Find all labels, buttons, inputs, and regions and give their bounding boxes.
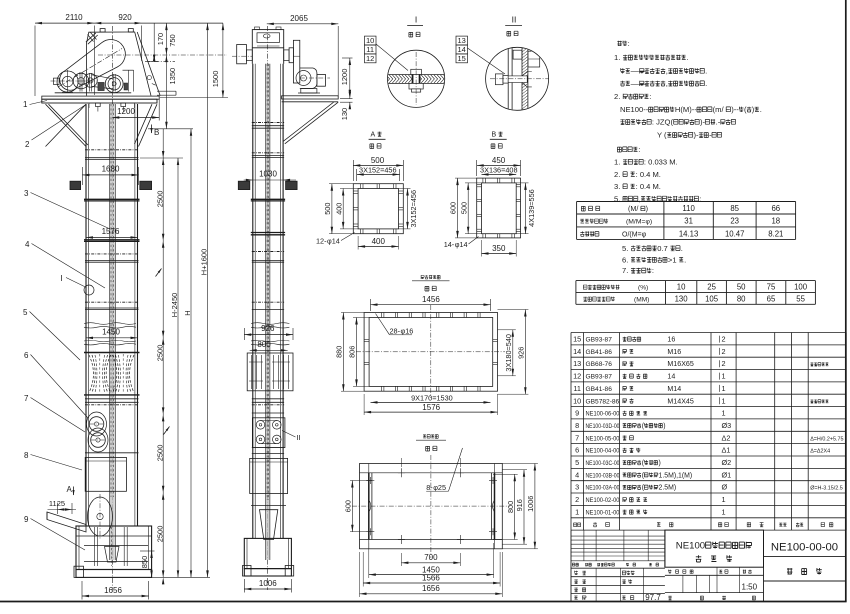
svg-text:11: 11 (366, 45, 374, 54)
svg-text:10: 10 (366, 36, 374, 45)
svg-text:110: 110 (682, 204, 695, 213)
svg-text:1: 1 (23, 100, 28, 109)
svg-text:NE100-01-00: NE100-01-00 (586, 510, 620, 517)
svg-text:NE100-02-00: NE100-02-00 (586, 497, 620, 504)
svg-text::: : (652, 266, 654, 275)
svg-text:11: 11 (573, 384, 581, 393)
svg-text:II: II (297, 433, 301, 442)
svg-text:φ16: φ16 (401, 327, 414, 336)
svg-text:A: A (67, 485, 73, 494)
svg-text:Ø1: Ø1 (722, 470, 732, 479)
svg-text::: : (638, 145, 640, 154)
svg-text:2110: 2110 (65, 13, 83, 22)
svg-text:0.7: 0.7 (657, 244, 668, 253)
svg-text:1350: 1350 (168, 68, 177, 85)
svg-text:600: 600 (449, 202, 458, 214)
svg-text:806: 806 (348, 346, 357, 358)
svg-text:2: 2 (722, 359, 726, 368)
svg-text:170: 170 (156, 33, 165, 46)
svg-text:10: 10 (677, 282, 686, 291)
svg-text:1680: 1680 (102, 165, 120, 174)
svg-text:1656: 1656 (422, 584, 440, 593)
svg-text:65: 65 (767, 294, 776, 303)
svg-text:12: 12 (573, 372, 581, 381)
svg-text:850: 850 (140, 556, 149, 569)
svg-text:Ø3: Ø3 (722, 421, 732, 430)
svg-text:14: 14 (573, 347, 581, 356)
svg-text:7: 7 (575, 433, 579, 442)
svg-text:NE100-06-00: NE100-06-00 (586, 411, 620, 418)
svg-text:8-: 8- (426, 483, 433, 492)
svg-text:23: 23 (730, 217, 739, 226)
svg-text::: : (649, 92, 651, 101)
svg-text:.-: .- (716, 118, 721, 127)
svg-text:φ25: φ25 (433, 483, 446, 492)
svg-text:Y (: Y ( (657, 131, 667, 140)
svg-text:NE100-03C-00: NE100-03C-00 (586, 460, 620, 467)
svg-text:700: 700 (424, 553, 438, 562)
svg-text:13: 13 (573, 359, 581, 368)
svg-text:GB93-87: GB93-87 (586, 337, 613, 344)
svg-text:97.7: 97.7 (645, 593, 661, 602)
svg-text:80: 80 (737, 294, 746, 303)
svg-text:Ø=H-3.15/2.5: Ø=H-3.15/2.5 (810, 486, 843, 492)
svg-text:800: 800 (257, 340, 271, 349)
svg-text:A: A (371, 132, 376, 139)
svg-text:2500: 2500 (155, 345, 164, 362)
svg-text:: 0.033 M.: : 0.033 M. (644, 158, 678, 167)
svg-text:3: 3 (575, 483, 579, 492)
svg-text:3.: 3. (614, 182, 620, 191)
svg-text:3X180=540: 3X180=540 (504, 334, 513, 372)
svg-text:4: 4 (25, 240, 30, 249)
svg-text:(%): (%) (638, 284, 648, 291)
svg-text:>1: >1 (668, 255, 677, 264)
svg-text:)-: )- (694, 131, 700, 140)
svg-text:916: 916 (515, 499, 524, 511)
svg-text:3: 3 (24, 189, 29, 198)
svg-text:(M/M=φ): (M/M=φ) (626, 219, 652, 226)
svg-text:φ14: φ14 (327, 237, 340, 246)
svg-text:Δ=Δ2X4: Δ=Δ2X4 (810, 449, 830, 455)
svg-text:)-: )- (700, 118, 706, 127)
svg-text:2.5M): 2.5M) (659, 485, 677, 492)
svg-text:B: B (154, 128, 159, 137)
svg-text:NE100-04-00: NE100-04-00 (586, 448, 620, 455)
svg-text:5: 5 (23, 308, 28, 317)
svg-text:GB41-86: GB41-86 (586, 386, 613, 393)
svg-text:1566: 1566 (422, 574, 440, 583)
svg-text:1656: 1656 (104, 586, 122, 595)
svg-text:2: 2 (722, 335, 726, 344)
svg-text:GB5782-86: GB5782-86 (586, 398, 620, 405)
svg-text:.: . (760, 105, 762, 114)
svg-text:400: 400 (334, 203, 343, 215)
svg-text:15: 15 (573, 335, 581, 344)
svg-text:NE100-05-00: NE100-05-00 (586, 435, 620, 442)
svg-text:)--: )-- (731, 105, 739, 114)
svg-text:φ14: φ14 (455, 240, 468, 249)
svg-text:B: B (492, 132, 497, 139)
svg-text:1.: 1. (614, 53, 620, 62)
svg-text:2500: 2500 (155, 191, 164, 208)
svg-text:450: 450 (492, 156, 506, 165)
svg-text:NE100--: NE100-- (620, 105, 649, 114)
svg-text:1200: 1200 (340, 69, 349, 86)
svg-text:800: 800 (506, 501, 515, 513)
svg-text:NE100-00-00: NE100-00-00 (771, 541, 838, 553)
svg-text:16: 16 (667, 336, 675, 344)
svg-text:4: 4 (575, 470, 579, 479)
svg-text:,: , (666, 79, 668, 88)
svg-text:,: , (666, 67, 668, 76)
svg-text:NE100-03B-00: NE100-03B-00 (586, 472, 620, 479)
svg-text:.: . (705, 67, 707, 76)
svg-text:Δ=H/0.2+5.75: Δ=H/0.2+5.75 (810, 436, 843, 442)
svg-text:8: 8 (575, 421, 579, 430)
svg-text:1: 1 (722, 372, 726, 381)
svg-text:(MM): (MM) (634, 296, 649, 303)
svg-text:9X170=1530: 9X170=1530 (411, 393, 453, 402)
svg-text:3X136=408: 3X136=408 (480, 165, 518, 174)
svg-text::: : (628, 39, 630, 48)
svg-text:1: 1 (575, 508, 579, 517)
svg-text:Ø: Ø (722, 483, 728, 492)
svg-text:5: 5 (575, 458, 579, 467)
svg-text:M16: M16 (667, 348, 681, 356)
svg-text:130: 130 (340, 108, 349, 121)
svg-text:9: 9 (24, 515, 29, 524)
svg-text:H+1600: H+1600 (199, 249, 208, 275)
svg-text:M14X45: M14X45 (667, 397, 693, 405)
svg-text:600: 600 (344, 500, 353, 512)
svg-text:1:50: 1:50 (742, 582, 758, 591)
svg-text:1125: 1125 (49, 499, 65, 508)
svg-text:1: 1 (722, 508, 726, 517)
svg-text:1: 1 (722, 409, 726, 418)
svg-text:II: II (512, 15, 517, 25)
svg-text:85: 85 (730, 204, 739, 213)
svg-text:Ø2: Ø2 (722, 458, 732, 467)
svg-text:1006: 1006 (259, 579, 277, 588)
svg-text:(M/: (M/ (628, 204, 638, 213)
svg-text:1200: 1200 (117, 107, 135, 116)
svg-text:12-: 12- (316, 237, 327, 246)
svg-text:14: 14 (667, 373, 675, 381)
svg-text:H-2450: H-2450 (170, 293, 179, 318)
svg-text:NE100-03A-00: NE100-03A-00 (586, 485, 620, 492)
svg-text:10: 10 (573, 396, 581, 405)
svg-text:9: 9 (575, 409, 579, 418)
svg-text:NE100: NE100 (676, 541, 705, 552)
svg-text:3X152=456: 3X152=456 (409, 190, 418, 228)
svg-text:14.13: 14.13 (679, 229, 699, 238)
svg-text:1030: 1030 (259, 170, 277, 179)
svg-text:): ) (646, 204, 648, 213)
svg-text:1500: 1500 (211, 71, 220, 88)
svg-text:Δ1: Δ1 (722, 446, 731, 455)
svg-text:2.: 2. (614, 92, 620, 101)
svg-text:105: 105 (705, 294, 719, 303)
svg-text:.: . (705, 79, 707, 88)
svg-text:6: 6 (575, 446, 579, 455)
svg-text:1576: 1576 (102, 227, 120, 236)
svg-text:O/(M=φ: O/(M=φ (622, 231, 647, 238)
svg-text:GB93-87: GB93-87 (586, 374, 613, 381)
svg-text:Δ2: Δ2 (722, 433, 731, 442)
svg-text:350: 350 (492, 244, 506, 253)
svg-text:8.21: 8.21 (768, 229, 783, 238)
svg-text:2: 2 (25, 140, 30, 149)
svg-text:31: 31 (684, 217, 693, 226)
svg-text:5.: 5. (622, 244, 628, 253)
svg-text:1576: 1576 (422, 403, 440, 412)
svg-text:500: 500 (323, 203, 332, 215)
svg-text:500: 500 (371, 156, 385, 165)
svg-text:14-: 14- (444, 240, 455, 249)
svg-text:6.: 6. (622, 255, 628, 264)
svg-text:400: 400 (372, 237, 386, 246)
svg-text:13: 13 (458, 36, 466, 45)
svg-text:GB68-76: GB68-76 (586, 361, 613, 368)
svg-text:.: . (684, 255, 686, 264)
svg-text:130: 130 (675, 294, 689, 303)
svg-text:7.: 7. (622, 266, 628, 275)
svg-text:500: 500 (459, 202, 468, 214)
svg-text:2.: 2. (614, 170, 620, 179)
svg-text:: 0.4 M.: : 0.4 M. (636, 182, 661, 191)
svg-text:2: 2 (722, 347, 726, 356)
svg-text:926: 926 (261, 324, 275, 333)
svg-text:28-: 28- (390, 327, 401, 336)
svg-text:7: 7 (24, 394, 29, 403)
svg-text:1: 1 (722, 384, 726, 393)
svg-text:50: 50 (737, 282, 746, 291)
svg-text:H: H (183, 310, 192, 315)
svg-text:880: 880 (335, 346, 344, 358)
svg-text:GB41-86: GB41-86 (586, 349, 613, 356)
svg-text:55: 55 (796, 294, 805, 303)
svg-text:2500: 2500 (155, 445, 164, 462)
svg-text:25: 25 (707, 282, 716, 291)
svg-text:1.5M),1(M): 1.5M),1(M) (659, 472, 693, 479)
svg-text:10.47: 10.47 (725, 229, 745, 238)
svg-text:4X139=556: 4X139=556 (527, 189, 536, 227)
svg-text:750: 750 (168, 34, 177, 47)
svg-text:100: 100 (794, 282, 808, 291)
svg-text:1456: 1456 (422, 295, 440, 304)
svg-text:1450: 1450 (102, 327, 120, 336)
svg-text:M14: M14 (667, 385, 681, 393)
svg-text:66: 66 (771, 204, 780, 213)
svg-text:1.: 1. (614, 158, 620, 167)
svg-text:): ) (659, 460, 661, 467)
svg-text:.: . (681, 244, 683, 253)
svg-text:6: 6 (24, 351, 29, 360)
svg-text:I: I (415, 15, 417, 25)
svg-text:15: 15 (458, 54, 466, 63)
svg-text:2065: 2065 (290, 14, 308, 23)
svg-text:1: 1 (722, 396, 726, 405)
svg-text:: JZQ(: : JZQ( (652, 118, 674, 127)
svg-text:: 0.4 M.: : 0.4 M. (636, 170, 661, 179)
svg-text:926: 926 (517, 347, 526, 359)
svg-text:3X152=456: 3X152=456 (359, 165, 397, 174)
svg-text:12: 12 (366, 54, 374, 63)
svg-text:): ) (663, 423, 665, 430)
svg-text:M16X65: M16X65 (667, 360, 693, 368)
svg-text:.: . (687, 53, 689, 62)
svg-text:1006: 1006 (526, 496, 535, 512)
svg-text:2500: 2500 (155, 526, 164, 543)
svg-text:75: 75 (767, 282, 776, 291)
svg-text:(m/: (m/ (713, 105, 725, 114)
svg-text:H(M)--: H(M)-- (675, 105, 697, 114)
svg-text:14: 14 (458, 45, 466, 54)
svg-text:1: 1 (722, 495, 726, 504)
svg-text:I: I (61, 274, 63, 283)
svg-text:18: 18 (771, 217, 780, 226)
svg-text:NE100-03D-00: NE100-03D-00 (586, 423, 620, 430)
svg-text:2: 2 (575, 495, 579, 504)
svg-text:920: 920 (118, 13, 132, 22)
svg-text:8: 8 (24, 451, 29, 460)
